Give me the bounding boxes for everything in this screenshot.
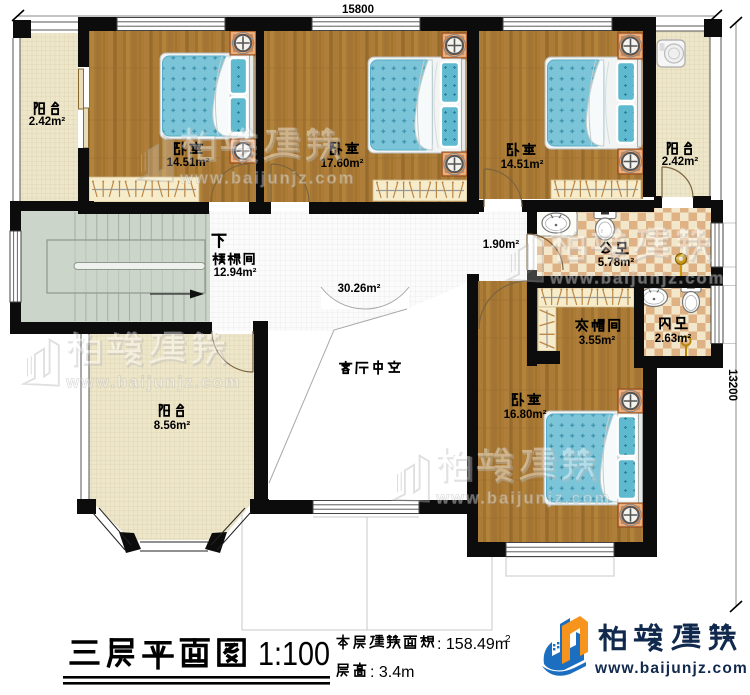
svg-text:2.42m²: 2.42m² xyxy=(662,156,699,168)
svg-text:30.26m²: 30.26m² xyxy=(338,283,381,295)
svg-text:1.90m²: 1.90m² xyxy=(483,239,520,251)
svg-text:13200: 13200 xyxy=(726,369,738,401)
svg-text:www.baijunjz.com: www.baijunjz.com xyxy=(549,269,725,288)
svg-text:www.baijunjz.com: www.baijunjz.com xyxy=(179,169,355,188)
svg-text:14.51m²: 14.51m² xyxy=(501,159,544,171)
svg-text:www.baijunjz.com: www.baijunjz.com xyxy=(594,660,748,677)
svg-text:www.baijunjz.com: www.baijunjz.com xyxy=(65,373,241,392)
svg-text:12.94m²: 12.94m² xyxy=(214,267,257,279)
svg-text:1:100: 1:100 xyxy=(258,635,330,672)
svg-text:3.55m²: 3.55m² xyxy=(579,335,616,347)
svg-text:2.42m²: 2.42m² xyxy=(29,116,66,128)
svg-text:8.56m²: 8.56m² xyxy=(154,420,191,432)
svg-text:: 158.49m: : 158.49m xyxy=(437,636,508,653)
svg-text:16.80m²: 16.80m² xyxy=(504,409,547,421)
svg-text:2: 2 xyxy=(505,634,511,645)
svg-text:15800: 15800 xyxy=(342,4,374,16)
svg-text:www.baijunjz.com: www.baijunjz.com xyxy=(435,489,611,508)
svg-text:: 3.4m: : 3.4m xyxy=(370,664,414,681)
svg-text:2.63m²: 2.63m² xyxy=(655,333,692,345)
